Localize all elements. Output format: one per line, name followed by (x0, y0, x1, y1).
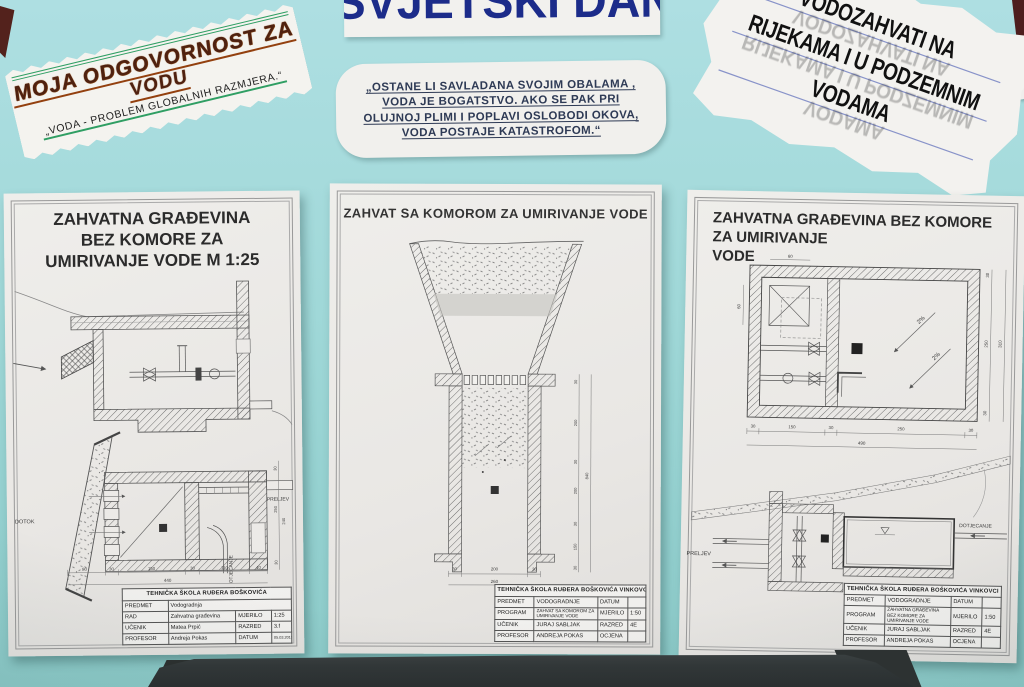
label-dotjecanje: DOTJECANJE (959, 523, 993, 530)
sheet-right-title-line: ZAHVATNA GRAĐEVINA BEZ KOMORE ZA UMIRIVA… (712, 208, 1009, 252)
grate-slots (464, 375, 526, 384)
svg-text:30: 30 (532, 567, 537, 572)
svg-text:30: 30 (573, 379, 578, 384)
svg-text:30: 30 (572, 565, 577, 570)
svg-text:30: 30 (190, 566, 195, 571)
center-dim-chain-bottom: 30 200 30 260 (448, 566, 540, 585)
label-otjecanje: OTJECANJE (228, 555, 234, 583)
svg-text:150: 150 (573, 543, 578, 550)
center-dim-chain-right: 30 200 30 200 840 30 150 30 (572, 374, 591, 572)
svg-text:30: 30 (573, 459, 578, 464)
svg-text:80: 80 (82, 567, 87, 572)
svg-text:30: 30 (829, 425, 834, 430)
left-section-drawing (13, 281, 293, 434)
svg-text:250: 250 (897, 426, 905, 431)
left-plan-drawing: DOTOK PRELJEV OTJECANJE 80 30 150 30 (14, 431, 294, 602)
svg-text:250: 250 (984, 340, 989, 348)
funnel-intake-drawing (408, 241, 583, 573)
slope-label: 2% (916, 315, 927, 326)
drawing-sheet-left: ZAHVATNA GRAĐEVINA BEZ KOMORE ZA UMIRIVA… (4, 190, 305, 656)
world-water-day-text: SVJETSKI DAN VODA (344, 0, 660, 31)
svg-text:60: 60 (736, 303, 741, 308)
svg-text:30: 30 (982, 410, 987, 415)
banner-world-water-day: SVJETSKI DAN VODA (344, 0, 660, 37)
slope-label: 2% (932, 351, 943, 362)
sheet-center-title: ZAHVAT SA KOMOROM ZA UMIRIVANJE VODE (330, 205, 662, 221)
left-dim-chain-right: 30 250 240 30 (272, 461, 286, 570)
quote-paper: „OSTANE LI SAVLADANA SVOJIM OBALAMA , VO… (335, 60, 666, 159)
svg-text:40: 40 (256, 565, 261, 570)
svg-text:30: 30 (751, 424, 756, 429)
svg-text:150: 150 (788, 424, 796, 429)
banner-responsibility: MOJA ODGOVORNOST ZA VODU „VODA - PROBLEM… (4, 3, 313, 162)
board-corner-sliver-left (0, 6, 24, 58)
svg-text:30: 30 (452, 566, 457, 571)
svg-text:200: 200 (573, 487, 578, 494)
svg-text:200: 200 (491, 566, 499, 571)
svg-text:200: 200 (573, 419, 578, 426)
center-sheet-titleblock: TEHNIČKA ŠKOLA RUĐERA BOŠKOVIĆA VINKOVCI… (494, 584, 646, 642)
chair-back (148, 652, 914, 687)
svg-text:150: 150 (148, 566, 156, 571)
svg-text:30: 30 (969, 428, 974, 433)
svg-text:30: 30 (109, 566, 114, 571)
center-sheet-technical-drawing: 30 200 30 200 840 30 150 30 30 200 30 26 (334, 223, 655, 624)
svg-text:840: 840 (584, 472, 589, 479)
svg-text:110: 110 (221, 565, 229, 570)
label-dotok: DOTOK (15, 519, 35, 525)
right-sheet-titleblock: TEHNIČKA ŠKOLA RUĐERA BOŠKOVIĆA VINKOVCI… (843, 583, 1002, 649)
svg-text:240: 240 (281, 517, 286, 525)
drawing-sheet-right: ZAHVATNA GRAĐEVINA BEZ KOMORE ZA UMIRIVA… (679, 190, 1024, 663)
svg-text:60: 60 (788, 254, 793, 259)
svg-text:260: 260 (491, 579, 499, 584)
left-sheet-titleblock: TEHNIČKA ŠKOLA RUĐERA BOŠKOVIĆA PREDMETV… (122, 587, 293, 645)
bulletin-board-photo: MOJA ODGOVORNOST ZA VODU „VODA - PROBLEM… (0, 0, 1024, 687)
svg-text:310: 310 (998, 340, 1003, 348)
svg-text:30: 30 (272, 465, 277, 470)
sheet-left-title: ZAHVATNA GRAĐEVINA BEZ KOMORE ZA UMIRIVA… (4, 206, 301, 272)
label-preljev: PRELJEV (686, 551, 711, 557)
svg-text:30: 30 (273, 559, 278, 564)
right-plan-view: 2% 2% 60 60 (734, 253, 980, 422)
banner-water-intakes: VODOZAHVATI NA VODOZAHVATI NA RIJEKAMA I… (671, 0, 1024, 218)
svg-text:490: 490 (858, 441, 866, 446)
label-preljev: PRELJEV (267, 497, 290, 503)
drawing-sheet-center: ZAHVAT SA KOMOROM ZA UMIRIVANJE VODE (328, 183, 662, 654)
svg-text:250: 250 (273, 505, 278, 513)
svg-text:30: 30 (573, 521, 578, 526)
right-section-view: DOTJECANJE PRELJEV (686, 450, 1011, 595)
svg-text:30: 30 (985, 272, 990, 277)
sheet-left-title-line: UMIRIVANJE VODE M 1:25 (4, 248, 300, 272)
svg-text:440: 440 (164, 578, 172, 583)
